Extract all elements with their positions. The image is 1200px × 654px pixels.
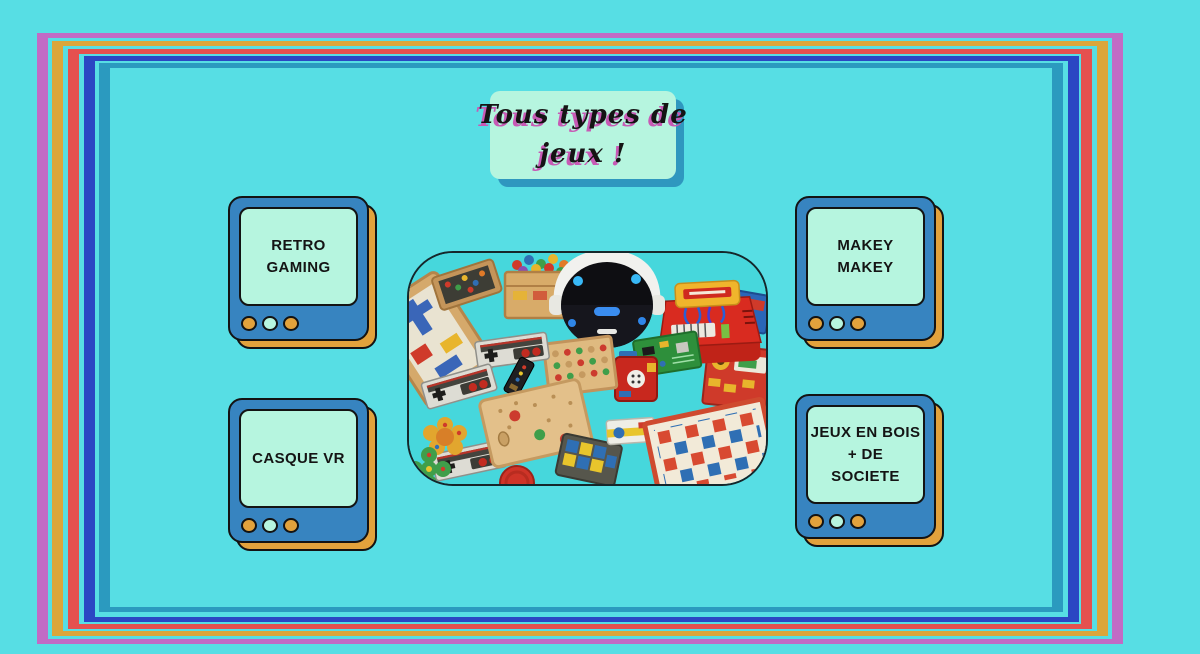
tv-label: MAKEY (837, 235, 893, 257)
knob-icon (241, 518, 257, 533)
tv-knobs (241, 518, 299, 533)
tv-frame: RETRO GAMING (228, 196, 369, 341)
tv-frame: CASQUE VR (228, 398, 369, 543)
page: Tous types de jeux ! RETRO GAMING MAKEY … (0, 0, 1200, 654)
knob-icon (808, 514, 824, 529)
knob-icon (283, 316, 299, 331)
knob-icon (262, 316, 278, 331)
knob-icon (808, 316, 824, 331)
tv-frame: JEUX EN BOIS + DE SOCIETE (795, 394, 936, 539)
tv-label: CASQUE VR (252, 448, 345, 470)
tv-label: JEUX EN BOIS (811, 422, 921, 444)
tv-label: MAKEY (837, 257, 893, 279)
knob-icon (850, 316, 866, 331)
title-box: Tous types de jeux ! (490, 91, 676, 179)
electronic-cube (615, 351, 657, 401)
tv-knobs (808, 316, 866, 331)
tv-button-jeux-en-bois[interactable]: JEUX EN BOIS + DE SOCIETE (795, 394, 936, 539)
tv-knobs (808, 514, 866, 529)
knob-icon (829, 316, 845, 331)
knob-icon (850, 514, 866, 529)
knob-icon (262, 518, 278, 533)
tv-label: SOCIETE (831, 466, 900, 488)
tv-label: GAMING (266, 257, 330, 279)
tv-screen: RETRO GAMING (239, 207, 358, 306)
tv-knobs (241, 316, 299, 331)
page-title-line2: jeux ! (540, 135, 627, 174)
tv-button-casque-vr[interactable]: CASQUE VR (228, 398, 369, 543)
tv-frame: MAKEY MAKEY (795, 196, 936, 341)
games-photo (407, 251, 768, 486)
tv-button-makey-makey[interactable]: MAKEY MAKEY (795, 196, 936, 341)
knob-icon (829, 514, 845, 529)
tv-label: RETRO (271, 235, 326, 257)
tv-screen: JEUX EN BOIS + DE SOCIETE (806, 405, 925, 504)
knob-icon (241, 316, 257, 331)
tv-screen: CASQUE VR (239, 409, 358, 508)
knob-icon (283, 518, 299, 533)
tv-screen: MAKEY MAKEY (806, 207, 925, 306)
tv-button-retro-gaming[interactable]: RETRO GAMING (228, 196, 369, 341)
page-title-line1: Tous types de (478, 96, 688, 135)
tv-label: + DE (848, 444, 883, 466)
